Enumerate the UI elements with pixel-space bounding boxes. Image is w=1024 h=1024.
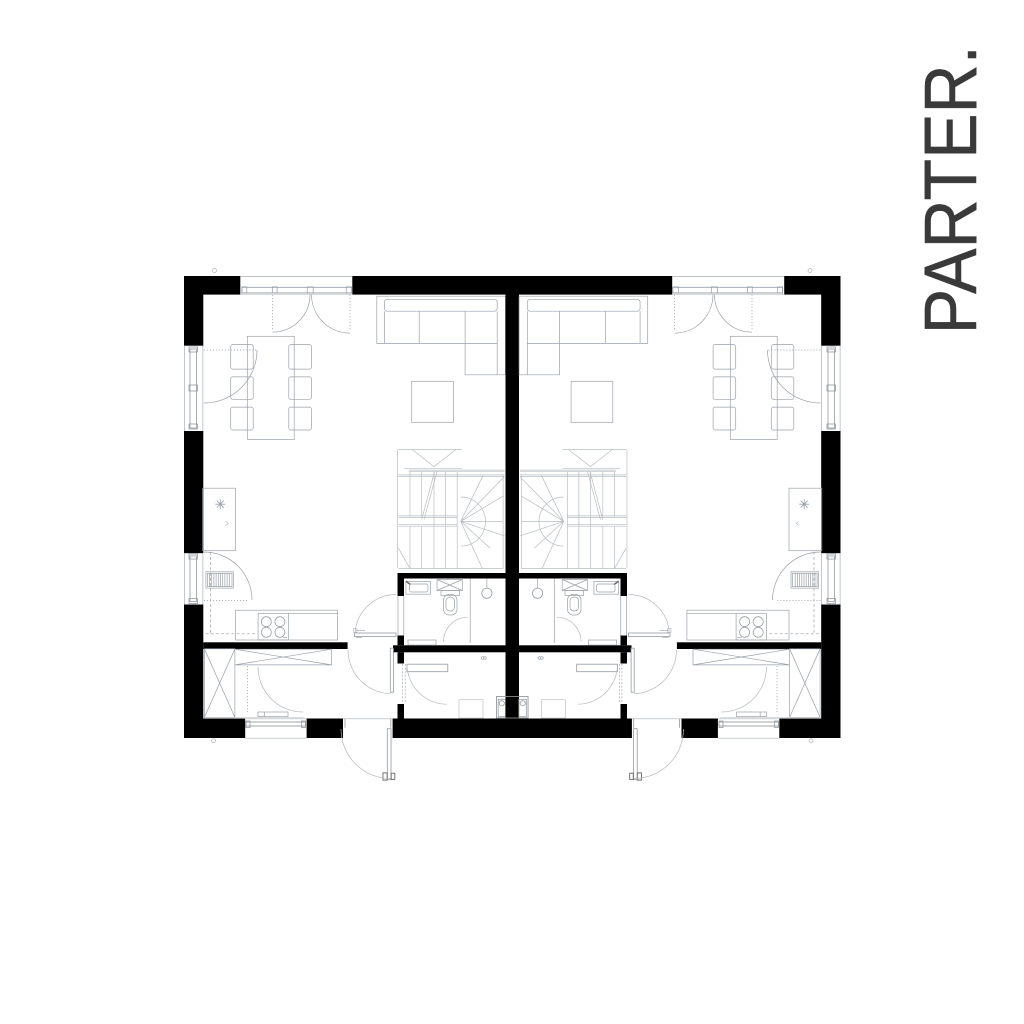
- svg-text:PARTER.: PARTER.: [909, 45, 992, 334]
